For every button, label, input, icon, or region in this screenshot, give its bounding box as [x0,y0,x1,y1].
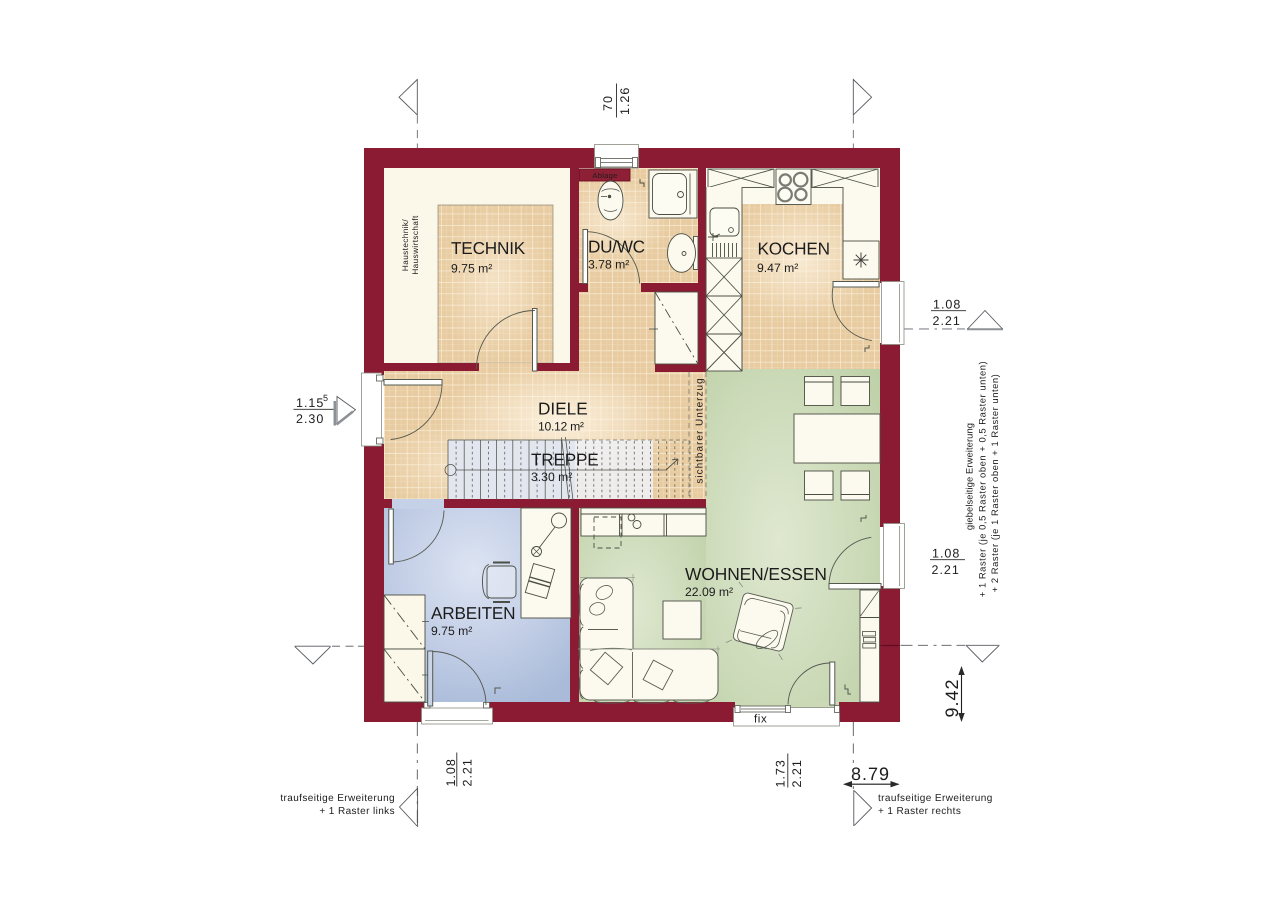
svg-text:Hauswirtschaft: Hauswirtschaft [411,215,420,275]
svg-text:traufseitige Erweiterung: traufseitige Erweiterung [280,793,395,804]
svg-text:2.30: 2.30 [296,412,324,426]
svg-text:22.09 m²: 22.09 m² [685,585,733,599]
svg-text:1.08: 1.08 [932,547,960,561]
svg-text:WOHNEN/ESSEN: WOHNEN/ESSEN [685,564,827,584]
svg-text:fix: fix [754,714,767,726]
svg-text:8.79: 8.79 [851,764,890,784]
svg-text:sichtbarer Unterzug: sichtbarer Unterzug [695,377,706,483]
svg-text:9.42: 9.42 [942,678,962,717]
svg-text:2.21: 2.21 [790,759,804,787]
svg-text:9.47 m²: 9.47 m² [757,261,798,275]
svg-text:Ablage: Ablage [592,171,617,180]
svg-text:TREPPE: TREPPE [531,450,599,470]
svg-text:2.21: 2.21 [461,758,475,786]
svg-text:2.21: 2.21 [933,314,961,328]
svg-text:TECHNIK: TECHNIK [451,238,526,258]
svg-text:DIELE: DIELE [538,399,588,419]
svg-text:2.21: 2.21 [932,563,960,577]
svg-text:+ 1 Raster rechts: + 1 Raster rechts [878,806,961,817]
svg-text:+ 1 Raster (je 0,5 Raster oben: + 1 Raster (je 0,5 Raster oben + 0,5 Ras… [977,361,988,597]
svg-text:9.75 m²: 9.75 m² [451,262,492,276]
svg-text:ARBEITEN: ARBEITEN [431,603,515,623]
svg-text:1.26: 1.26 [618,87,632,115]
svg-text:traufseitige Erweiterung: traufseitige Erweiterung [878,793,993,804]
svg-text:5: 5 [323,393,328,403]
svg-text:giebelseitige Erweiterung: giebelseitige Erweiterung [964,423,975,530]
svg-text:Haustechnik/: Haustechnik/ [401,219,410,271]
svg-text:KOCHEN: KOCHEN [758,239,830,259]
svg-text:DU/WC: DU/WC [588,237,645,257]
svg-text:1.08: 1.08 [444,758,458,786]
svg-text:9.75 m²: 9.75 m² [431,624,472,638]
svg-text:10.12 m²: 10.12 m² [538,420,584,434]
svg-text:70: 70 [601,95,615,111]
svg-text:+ 1 Raster links: + 1 Raster links [319,806,395,817]
svg-text:3.30 m²: 3.30 m² [531,470,572,484]
svg-text:+ 2 Raster (je 1 Raster oben +: + 2 Raster (je 1 Raster oben + 1 Raster … [989,374,1000,593]
svg-text:3.78 m²: 3.78 m² [588,258,629,272]
svg-text:1.08: 1.08 [933,298,961,312]
svg-text:1.73: 1.73 [774,759,788,787]
svg-text:1.15: 1.15 [296,396,324,410]
